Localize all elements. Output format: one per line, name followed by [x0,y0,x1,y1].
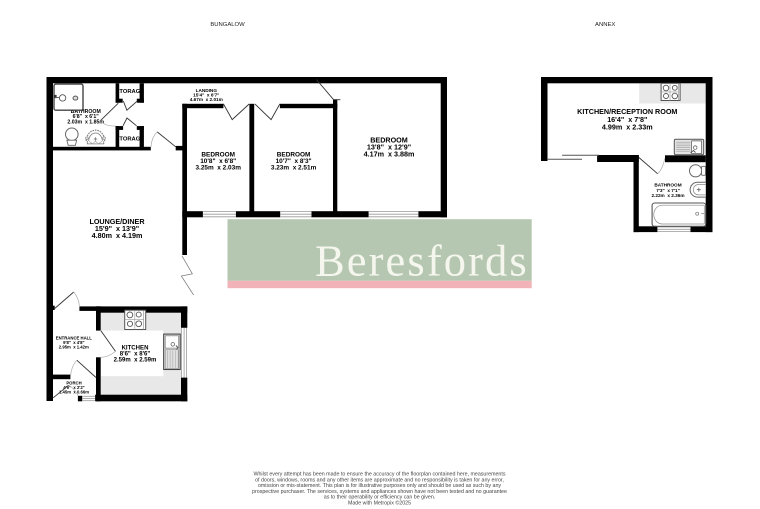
svg-text:3.23m x 2.51m: 3.23m x 2.51m [271,164,317,171]
svg-text:4.17m x 3.88m: 4.17m x 3.88m [364,150,415,159]
svg-text:3.25m x 2.03m: 3.25m x 2.03m [195,164,241,171]
svg-text:4.99m x 2.33m: 4.99m x 2.33m [602,123,653,132]
svg-text:8'6" x 8'6": 8'6" x 8'6" [120,352,151,358]
svg-text:ANNEX: ANNEX [595,22,615,28]
svg-text:4.67m x 2.01m: 4.67m x 2.01m [190,97,223,102]
svg-text:2.03m x 1.85m: 2.03m x 1.85m [67,119,104,125]
svg-text:2.95m x 1.42m: 2.95m x 1.42m [59,344,89,349]
svg-text:2.22m x 2.36m: 2.22m x 2.36m [651,193,684,198]
svg-text:4.80m x 4.19m: 4.80m x 4.19m [92,231,143,240]
svg-text:Beresfords: Beresfords [315,236,529,286]
svg-text:2.59m x 2.59m: 2.59m x 2.59m [114,358,157,364]
svg-text:BUNGALOW: BUNGALOW [210,22,245,28]
svg-text:Made with Metropix ©2025: Made with Metropix ©2025 [348,500,411,507]
